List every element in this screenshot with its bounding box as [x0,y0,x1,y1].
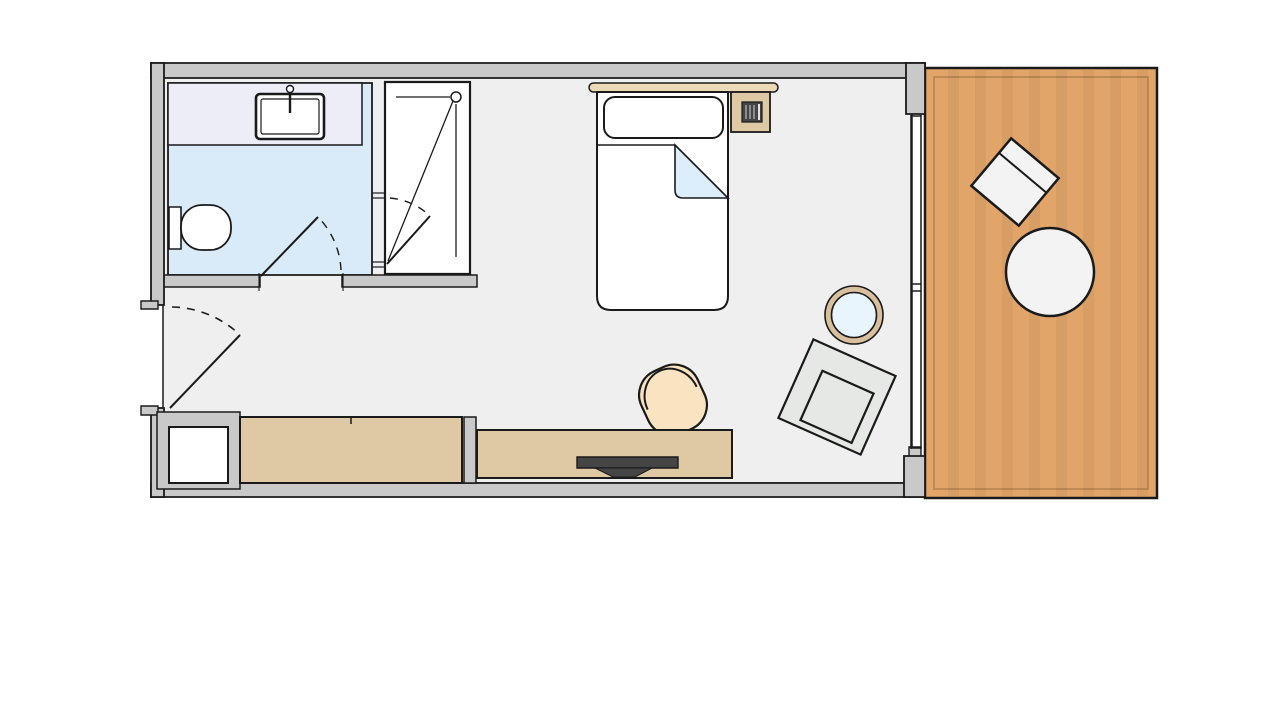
wardrobe [240,417,462,483]
shower-tray [385,82,470,274]
headboard [589,83,778,92]
wall-pier [464,417,476,483]
nightstand [731,92,770,132]
wall-bottom [151,483,925,497]
wall-top [151,63,925,78]
wall-left-upper [151,63,164,305]
tv-screen [577,457,678,468]
pillow [604,97,723,138]
entry-jamb-bottom [141,406,158,415]
wall-right-bottom-stub [904,456,925,497]
luggage-rack [169,427,228,483]
entry-jamb-top [141,301,158,309]
toilet-bowl [181,205,231,250]
side-table [825,286,883,344]
balcony-table [1006,228,1094,316]
side-table-top [832,293,877,338]
sideboard-desk [477,430,732,478]
shower [385,82,470,274]
washbasin [256,86,324,140]
faucet-knob [287,86,294,93]
floor-plan [0,0,1280,720]
bathroom [157,82,477,291]
toilet-cistern [169,207,181,249]
toilet [169,205,231,250]
wall-right-top-stub [906,63,925,114]
bathroom-wall-right [342,275,477,287]
balcony [925,68,1157,498]
bathroom-wall-left [157,275,260,287]
shower-head [451,92,461,102]
